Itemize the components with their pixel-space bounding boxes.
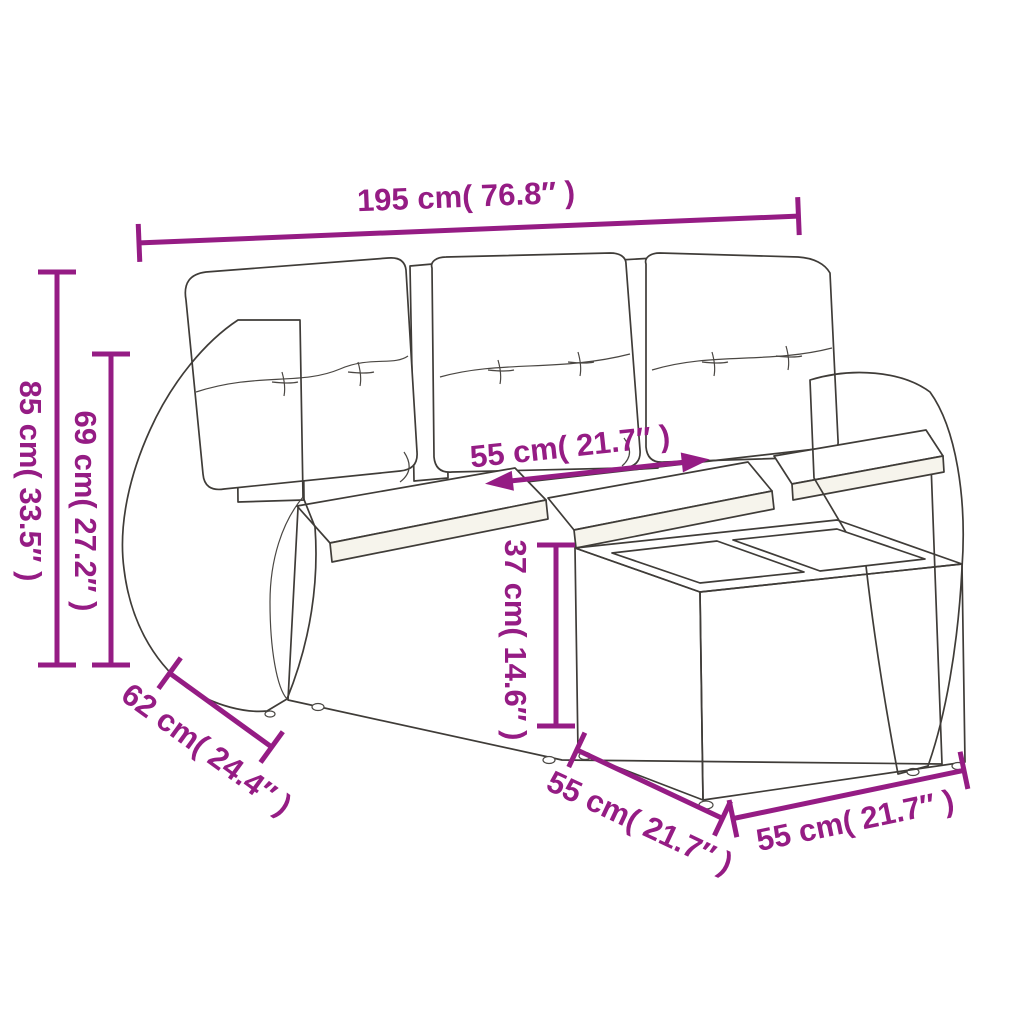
sofa-illustration	[122, 253, 963, 776]
sofa-foot	[312, 704, 324, 711]
table-illustration	[575, 520, 965, 809]
sofa-foot	[543, 757, 555, 764]
sofa-foot	[265, 711, 275, 717]
dim-table-height: 37 cm( 14.6″ )	[498, 540, 575, 741]
dim-label-overall-width: 195 cm( 76.8″ )	[356, 174, 575, 218]
back-cushion-right	[646, 253, 838, 462]
dim-overall-height: 85 cm( 33.5″ )	[13, 270, 76, 667]
dim-overall-width: 195 cm( 76.8″ )	[136, 174, 801, 262]
diagram-canvas: 195 cm( 76.8″ ) 85 cm( 33.5″ ) 69 cm( 27…	[0, 0, 1024, 1024]
dim-armrest-depth: 62 cm( 24.4″ )	[115, 657, 298, 823]
dim-label-overall-height: 85 cm( 33.5″ )	[13, 381, 48, 582]
product-dimension-diagram: 195 cm( 76.8″ ) 85 cm( 33.5″ ) 69 cm( 27…	[0, 0, 1024, 1024]
dim-label-back-height: 69 cm( 27.2″ )	[68, 411, 103, 612]
dim-back-height: 69 cm( 27.2″ )	[68, 352, 130, 667]
dim-label-table-height: 37 cm( 14.6″ )	[498, 540, 533, 741]
